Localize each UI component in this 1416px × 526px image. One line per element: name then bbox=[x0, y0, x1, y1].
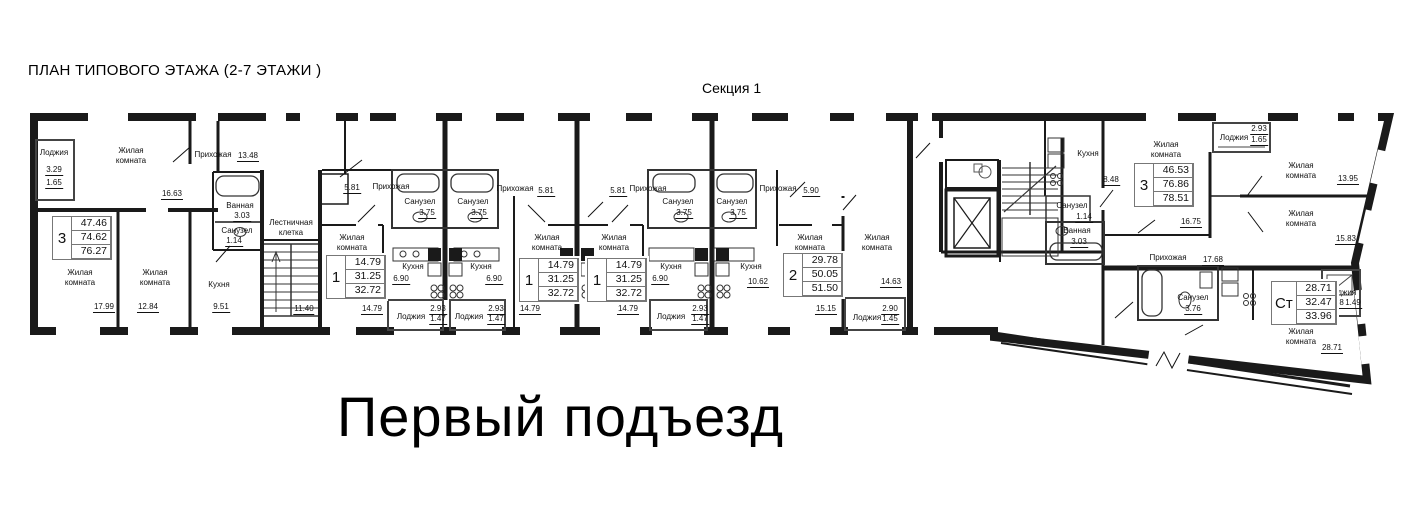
room-name: Кухня bbox=[470, 262, 491, 272]
apartment-area-value: 47.46 bbox=[71, 216, 111, 231]
room-area: 3.75 bbox=[729, 209, 747, 219]
apartment-areas: 47.4674.6276.27 bbox=[71, 217, 111, 259]
room-area: 13.95 bbox=[1337, 175, 1359, 185]
room-area-secondary: 1.47 bbox=[691, 315, 709, 325]
room-name: Ванная bbox=[1063, 226, 1090, 236]
room-area: 1.14 bbox=[1075, 213, 1093, 223]
apartment-area-value: 50.05 bbox=[802, 267, 842, 282]
room-area: 8.48 bbox=[1102, 176, 1120, 186]
room-area: 5.90 bbox=[802, 187, 820, 197]
room-area: 3.29 bbox=[45, 166, 63, 176]
room-area: 14.63 bbox=[880, 278, 902, 288]
floor-plan: ПЛАН ТИПОВОГО ЭТАЖА (2-7 ЭТАЖИ ) Секция … bbox=[0, 0, 1416, 526]
apartment-areas: 28.7132.4733.96 bbox=[1296, 282, 1336, 324]
apartment-area-value: 32.47 bbox=[1296, 295, 1336, 310]
room-name: Кухня bbox=[402, 262, 423, 272]
room-name: Лоджия bbox=[40, 148, 68, 158]
room-name: Прихожая bbox=[1149, 253, 1186, 263]
room-name: Лоджия bbox=[1220, 133, 1248, 143]
room-name: Кухня bbox=[740, 262, 761, 272]
apartment-card: 1 14.7931.2532.72 bbox=[587, 258, 647, 302]
room-name: Санузел bbox=[716, 197, 747, 207]
room-name: Лоджия bbox=[455, 312, 483, 322]
room-name: Жилая комната bbox=[599, 233, 629, 252]
apartment-area-value: 74.62 bbox=[71, 230, 111, 245]
room-name: Лестничная клетка bbox=[269, 218, 313, 237]
apartment-card: 3 46.5376.8678.51 bbox=[1134, 163, 1194, 207]
room-name: Санузел bbox=[457, 197, 488, 207]
room-name: Прихожая bbox=[194, 150, 231, 160]
apartment-area-value: 29.78 bbox=[802, 253, 842, 268]
apartment-areas: 46.5376.8678.51 bbox=[1153, 164, 1193, 206]
room-area: 14.79 bbox=[617, 305, 639, 315]
room-name: Лоджия bbox=[657, 312, 685, 322]
room-name: Санузел bbox=[404, 197, 435, 207]
room-area: 6.90 bbox=[392, 275, 410, 285]
room-area: 3.03 bbox=[1070, 238, 1088, 248]
room-area: 3.75 bbox=[470, 209, 488, 219]
room-area: 14.79 bbox=[519, 305, 541, 315]
apartment-area-value: 76.27 bbox=[71, 244, 111, 259]
apartment-type: 2 bbox=[784, 254, 802, 296]
entrance-label: Первый подъезд bbox=[337, 384, 784, 449]
apartment-type: 1 bbox=[520, 259, 538, 301]
apartment-card: 3 47.4674.6276.27 bbox=[52, 216, 112, 260]
room-name: Жилая комната bbox=[140, 268, 170, 287]
room-name: Жилая комната bbox=[532, 233, 562, 252]
room-name: Жилая комната bbox=[337, 233, 367, 252]
room-name: Кухня bbox=[208, 280, 229, 290]
room-name: Санузел bbox=[221, 226, 252, 236]
apartment-area-value: 32.72 bbox=[606, 286, 646, 301]
room-area: 6.90 bbox=[485, 275, 503, 285]
apartment-area-value: 31.25 bbox=[345, 269, 385, 284]
room-name: Жилая комната bbox=[1286, 209, 1316, 228]
apartment-area-value: 14.79 bbox=[538, 258, 578, 273]
room-name: Жилая комната bbox=[862, 233, 892, 252]
apartment-area-value: 46.53 bbox=[1153, 163, 1193, 178]
apartment-type: 1 bbox=[588, 259, 606, 301]
room-area: 5.81 bbox=[609, 187, 627, 197]
room-name: Лоджия bbox=[853, 313, 881, 323]
room-name: Прихожая bbox=[496, 184, 533, 194]
page-title: ПЛАН ТИПОВОГО ЭТАЖА (2-7 ЭТАЖИ ) bbox=[28, 62, 321, 79]
room-name: Лоджия bbox=[397, 312, 425, 322]
room-area-secondary: 1.49 bbox=[1344, 299, 1362, 309]
room-area: 3.75 bbox=[675, 209, 693, 219]
apartment-card: 1 14.7931.2532.72 bbox=[519, 258, 579, 302]
room-name: Жилая комната bbox=[1286, 161, 1316, 180]
apartment-area-value: 51.50 bbox=[802, 281, 842, 296]
room-name: Жилая комната bbox=[1286, 327, 1316, 346]
room-name: Жилая комната bbox=[65, 268, 95, 287]
room-area: 15.15 bbox=[815, 305, 837, 315]
room-name: Жилая комната bbox=[116, 146, 146, 165]
room-name: Жилая комната bbox=[795, 233, 825, 252]
room-name: Кухня bbox=[660, 262, 681, 272]
room-area: 16.63 bbox=[161, 190, 183, 200]
apartment-areas: 14.7931.2532.72 bbox=[345, 256, 385, 298]
room-area: 3.75 bbox=[418, 209, 436, 219]
room-area-secondary: 1.47 bbox=[487, 315, 505, 325]
room-area: 3.03 bbox=[233, 212, 251, 222]
room-area: 17.68 bbox=[1202, 256, 1224, 266]
apartment-area-value: 28.71 bbox=[1296, 281, 1336, 296]
room-area: 11.40 bbox=[293, 305, 314, 315]
apartment-areas: 29.7850.0551.50 bbox=[802, 254, 842, 296]
apartment-areas: 14.7931.2532.72 bbox=[606, 259, 646, 301]
apartment-type: 3 bbox=[53, 217, 71, 259]
apartment-area-value: 78.51 bbox=[1153, 191, 1193, 206]
room-name: Санузел bbox=[662, 197, 693, 207]
room-name: Санузел bbox=[1056, 201, 1087, 211]
room-area: 28.71 bbox=[1321, 344, 1343, 354]
room-area: 10.62 bbox=[747, 278, 769, 288]
apartment-areas: 14.7931.2532.72 bbox=[538, 259, 578, 301]
room-area: 15.83 bbox=[1335, 235, 1357, 245]
apartment-area-value: 14.79 bbox=[606, 258, 646, 273]
room-area-secondary: 1.47 bbox=[429, 315, 447, 325]
room-area: 12.84 bbox=[137, 303, 159, 313]
room-name: Санузел bbox=[1177, 293, 1208, 303]
room-area: 9.51 bbox=[212, 303, 230, 313]
room-name: Прихожая bbox=[629, 184, 666, 194]
room-name: Прихожая bbox=[759, 184, 796, 194]
section-label: Секция 1 bbox=[702, 80, 761, 96]
room-area: 5.81 bbox=[537, 187, 555, 197]
apartment-type: 3 bbox=[1135, 164, 1153, 206]
room-area: 2.93 bbox=[1250, 125, 1268, 135]
room-name: Жилая комната bbox=[1151, 140, 1181, 159]
room-area: 14.79 bbox=[361, 305, 383, 315]
room-area: 6.90 bbox=[651, 275, 669, 285]
room-name: Ванная bbox=[226, 201, 253, 211]
room-area-secondary: 1.65 bbox=[1250, 136, 1268, 146]
apartment-type: Ст bbox=[1272, 282, 1296, 324]
apartment-area-value: 31.25 bbox=[606, 272, 646, 287]
room-area: 13.48 bbox=[237, 152, 259, 162]
room-area: 16.75 bbox=[1180, 218, 1202, 228]
apartment-card: 1 14.7931.2532.72 bbox=[326, 255, 386, 299]
room-area: 1.14 bbox=[225, 237, 243, 247]
room-name: Кухня bbox=[1077, 149, 1098, 159]
room-name: Прихожая bbox=[372, 182, 409, 192]
room-area-secondary: 1.65 bbox=[45, 179, 63, 189]
apartment-area-value: 14.79 bbox=[345, 255, 385, 270]
apartment-area-value: 33.96 bbox=[1296, 309, 1336, 324]
apartment-area-value: 76.86 bbox=[1153, 177, 1193, 192]
room-area: 17.99 bbox=[93, 303, 115, 313]
apartment-area-value: 31.25 bbox=[538, 272, 578, 287]
apartment-card: 2 29.7850.0551.50 bbox=[783, 253, 843, 297]
apartment-card: Ст 28.7132.4733.96 bbox=[1271, 281, 1337, 325]
apartment-area-value: 32.72 bbox=[538, 286, 578, 301]
apartment-area-value: 32.72 bbox=[345, 283, 385, 298]
apartment-type: 1 bbox=[327, 256, 345, 298]
room-area-secondary: 1.45 bbox=[881, 315, 899, 325]
room-area: 5.81 bbox=[343, 184, 361, 194]
room-area: 3.76 bbox=[1184, 305, 1202, 315]
